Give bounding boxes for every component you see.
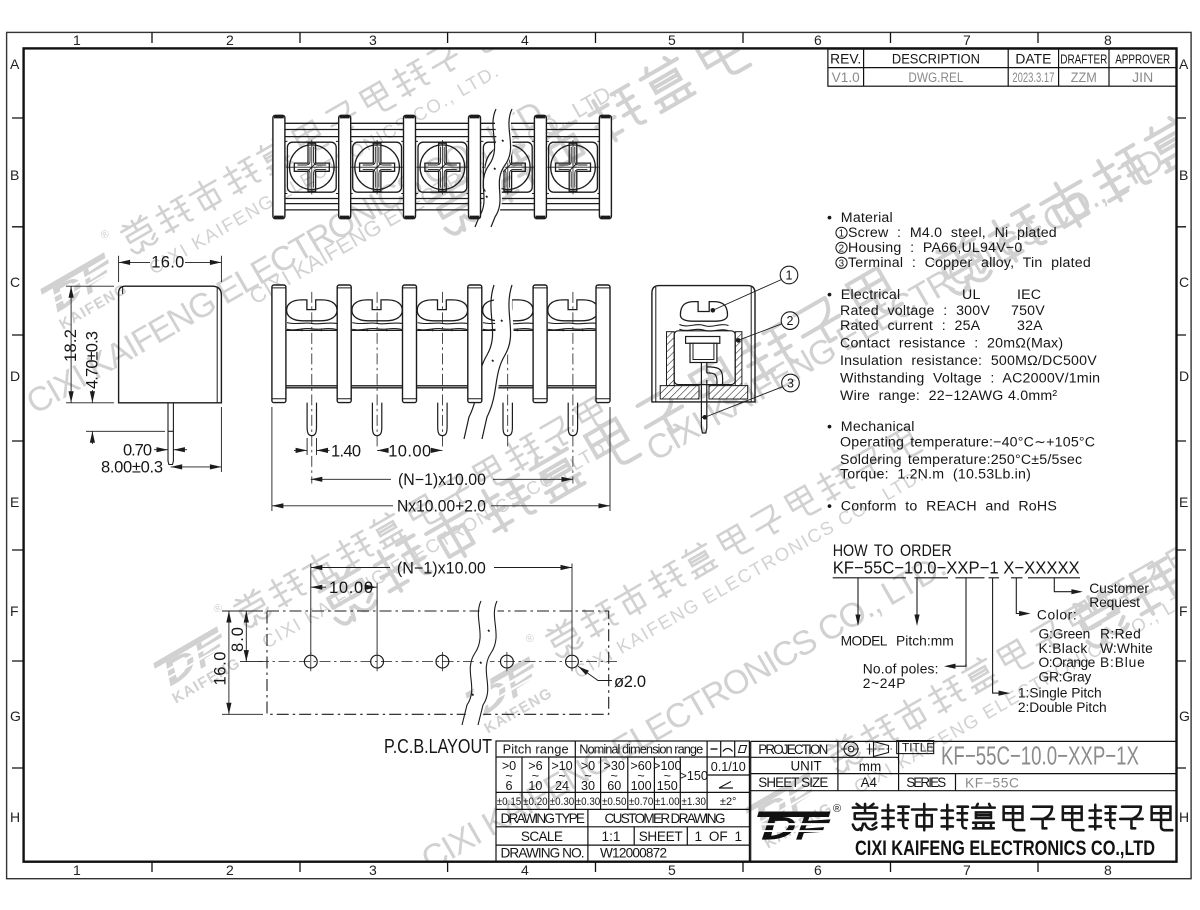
svg-text:W:White: W:White [1100,641,1153,656]
svg-text:KF−55C: KF−55C [965,776,1020,791]
svg-text:mm: mm [859,759,881,774]
svg-text:Color:: Color: [1037,608,1077,623]
svg-text:C: C [1179,274,1189,290]
svg-text:30: 30 [581,779,595,793]
svg-text:3: 3 [369,32,377,48]
svg-text:2023.3.17: 2023.3.17 [1012,70,1054,85]
svg-text:7: 7 [963,32,971,48]
svg-text:D: D [10,368,20,384]
svg-text:KF−55C−10.0−XXP−1 X−XXXXX: KF−55C−10.0−XXP−1 X−XXXXX [833,558,1080,578]
svg-text:Withstanding Voltage : AC2000V: Withstanding Voltage : AC2000V/1min [840,371,1100,387]
svg-text:KF−55C−10.0−XXP−1X: KF−55C−10.0−XXP−1X [941,741,1139,771]
svg-text:SCALE: SCALE [521,829,563,844]
svg-text:DRAFTER: DRAFTER [1060,53,1107,67]
svg-text:±0.70: ±0.70 [629,796,654,808]
svg-text:16.0: 16.0 [151,254,184,272]
svg-text:D: D [1179,368,1189,384]
svg-text:B: B [1179,167,1188,183]
svg-text:2: 2 [787,314,794,328]
svg-text:Nominal dimension range: Nominal dimension range [579,742,703,757]
svg-text:±1.30: ±1.30 [681,796,706,808]
svg-text:UNIT: UNIT [791,759,822,774]
svg-text:18.2: 18.2 [62,329,80,362]
svg-text:(N−1)x10.00: (N−1)x10.00 [397,559,486,577]
svg-text:PROJECTION: PROJECTION [758,742,828,757]
svg-text:±0.15: ±0.15 [497,796,522,808]
svg-text:CUSTOMER DRAWING: CUSTOMER DRAWING [605,811,726,826]
svg-text:2~24P: 2~24P [863,676,906,691]
svg-text:JIN: JIN [1132,70,1153,85]
svg-text:1: 1 [73,862,81,878]
svg-text:F: F [1179,603,1188,619]
svg-text:Nx10.00+2.0: Nx10.00+2.0 [397,498,486,516]
svg-text:4.70±0.3: 4.70±0.3 [83,331,101,389]
svg-text:CIXI KAIFENG ELECTRONICS CO.,L: CIXI KAIFENG ELECTRONICS CO.,LTD [855,836,1155,860]
svg-text:(N−1)x10.00: (N−1)x10.00 [398,471,486,489]
svg-text:H: H [1179,809,1189,825]
svg-text:• Mechanical: • Mechanical [827,419,915,435]
svg-text:Screw : M4.0 steel, Ni plated: Screw : M4.0 steel, Ni plated [848,225,1057,241]
svg-text:®: ® [833,803,841,815]
svg-text:6: 6 [814,32,822,48]
svg-text:Rated current : 25A: Rated current : 25A [840,318,981,334]
svg-text:8.0: 8.0 [229,627,247,652]
svg-text:>150: >150 [680,769,708,783]
svg-text:150: 150 [657,779,678,793]
svg-text:750V: 750V [1011,303,1045,319]
svg-text:DESCRIPTION: DESCRIPTION [892,52,980,67]
svg-text:±0.30: ±0.30 [550,796,575,808]
svg-text:O:Orange: O:Orange [1039,655,1096,670]
svg-text:MODEL: MODEL [841,634,888,649]
svg-text:Torque: 1.2N.m (10.53Lb.in): Torque: 1.2N.m (10.53Lb.in) [840,467,1031,483]
svg-text:Pitch:mm: Pitch:mm [896,634,954,649]
svg-text:24: 24 [555,779,569,793]
svg-text:±0.50: ±0.50 [602,796,627,808]
svg-text:±0.20: ±0.20 [523,796,548,808]
svg-text:3: 3 [369,862,377,878]
svg-text:H: H [10,809,20,825]
svg-text:1:Single Pitch: 1:Single Pitch [1018,686,1102,701]
svg-text:• Material: • Material [827,210,893,226]
svg-text:10.00: 10.00 [329,579,373,597]
svg-text:ø2.0: ø2.0 [614,673,646,691]
svg-text:G:Green: G:Green [1039,627,1091,642]
svg-text:F: F [10,603,19,619]
svg-text:No.of poles:: No.of poles: [863,662,939,677]
svg-text:7: 7 [963,862,971,878]
svg-text:5: 5 [668,862,676,878]
svg-text:• Conform to REACH and RoHS: • Conform to REACH and RoHS [827,499,1057,515]
svg-text:1: 1 [73,32,81,48]
svg-text:DRAWING NO.: DRAWING NO. [501,846,585,861]
svg-text:P.C.B.LAYOUT: P.C.B.LAYOUT [384,736,492,758]
svg-text:SHEET: SHEET [639,829,683,844]
svg-text:1: 1 [786,269,793,283]
svg-text:1 OF 1: 1 OF 1 [695,829,743,844]
svg-text:3: 3 [839,259,845,270]
svg-text:8: 8 [1104,862,1112,878]
svg-text:DRAWING TYPE: DRAWING TYPE [501,811,586,826]
svg-text:16.0: 16.0 [212,652,230,686]
svg-text:1:1: 1:1 [602,829,621,844]
svg-text:G: G [1179,708,1190,724]
svg-text:APPROVER: APPROVER [1115,53,1170,67]
svg-text:±0.30: ±0.30 [576,796,601,808]
svg-text:Housing : PA66,UL94V−0: Housing : PA66,UL94V−0 [848,240,1022,256]
svg-text:Wire range: 22−12AWG: Wire range: 22−12AWG [840,388,1003,404]
svg-text:10: 10 [528,779,542,793]
svg-text:4: 4 [521,32,529,48]
svg-text:6: 6 [505,779,512,793]
svg-text:DWG.REL: DWG.REL [908,70,963,85]
svg-text:V1.0: V1.0 [832,70,860,85]
svg-text:Pitch range: Pitch range [503,742,569,757]
svg-text:REV.: REV. [830,52,861,67]
svg-text:Contact resistance : 20mΩ(Max): Contact resistance : 20mΩ(Max) [840,336,1063,352]
svg-text:Operating temperature:−40°C∼+1: Operating temperature:−40°C∼+105°C [840,435,1095,451]
svg-text:Request: Request [1089,595,1140,610]
svg-text:Terminal : Copper alloy, Tin p: Terminal : Copper alloy, Tin plated [848,255,1091,271]
svg-text:6: 6 [814,862,822,878]
svg-text:2:Double Pitch: 2:Double Pitch [1018,700,1107,715]
svg-text:3: 3 [787,377,794,391]
svg-text:8.00±0.3: 8.00±0.3 [101,458,163,476]
svg-text:B: B [10,167,19,183]
svg-text:0.70: 0.70 [123,441,152,459]
svg-text:5: 5 [668,32,676,48]
svg-text:A: A [1179,56,1189,72]
svg-text:DATE: DATE [1015,52,1051,67]
svg-text:1: 1 [839,229,845,240]
svg-text:±2°: ±2° [720,796,737,808]
svg-text:2: 2 [226,32,234,48]
svg-text:R:Red: R:Red [1100,627,1141,642]
svg-text:A4: A4 [861,775,878,790]
svg-text:±1.00: ±1.00 [655,796,680,808]
svg-text:G: G [10,708,21,724]
svg-text:2: 2 [226,862,234,878]
svg-text:TITLE: TITLE [902,740,934,754]
svg-text:E: E [10,494,19,510]
svg-text:60: 60 [607,779,621,793]
svg-text:ZZM: ZZM [1071,70,1097,85]
svg-text:SHEET SIZE: SHEET SIZE [758,775,828,790]
svg-text:W12000872: W12000872 [600,846,667,861]
svg-text:UL: UL [962,287,981,303]
svg-text:IEC: IEC [1017,287,1041,303]
svg-text:2: 2 [839,244,845,255]
svg-text:10.00: 10.00 [388,442,431,460]
svg-text:32A: 32A [1017,318,1043,334]
svg-text:E: E [1179,494,1188,510]
svg-text:4.0mm²: 4.0mm² [1008,388,1057,404]
svg-text:B:Blue: B:Blue [1100,655,1145,670]
svg-text:C: C [10,274,20,290]
svg-text:8: 8 [1104,32,1112,48]
svg-text:100: 100 [631,779,652,793]
svg-text:Customer: Customer [1089,581,1149,596]
svg-text:• Electrical: • Electrical [827,287,900,303]
svg-text:4: 4 [521,862,529,878]
svg-text:K:Black: K:Black [1039,641,1088,656]
svg-text:GR:Gray: GR:Gray [1039,670,1092,685]
svg-text:SERIES: SERIES [906,775,946,790]
svg-text:1.40: 1.40 [331,442,361,460]
svg-text:A: A [10,56,20,72]
svg-text:0.1/10: 0.1/10 [711,760,746,774]
svg-text:Rated voltage : 300V: Rated voltage : 300V [840,303,990,319]
svg-text:Insulation resistance: 500MΩ/D: Insulation resistance: 500MΩ/DC500V [840,353,1097,369]
